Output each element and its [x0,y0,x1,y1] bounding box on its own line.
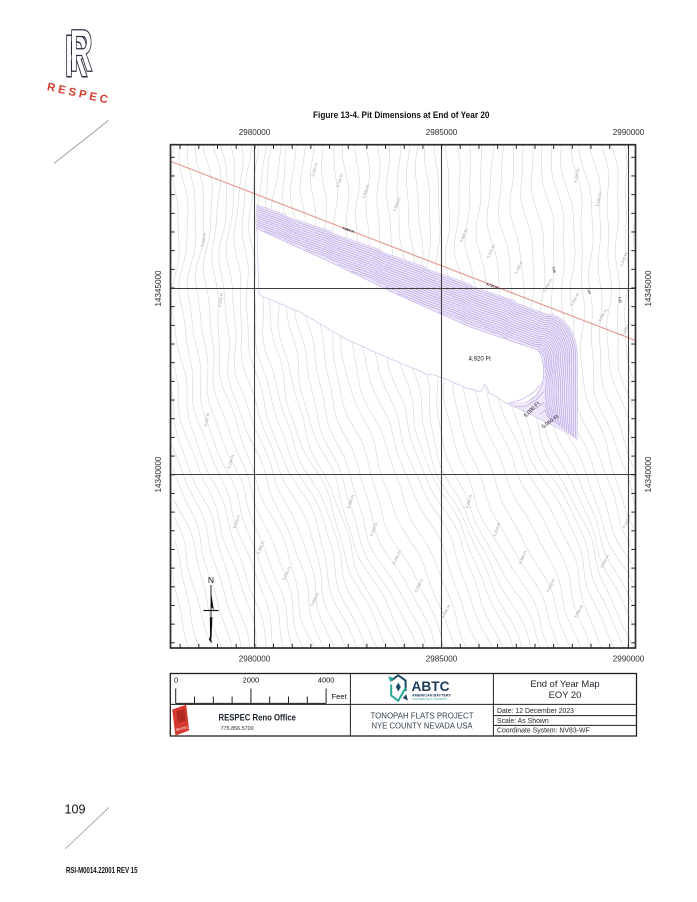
svg-text:Scale: As Shown: Scale: As Shown [497,718,549,725]
svg-text:4000: 4000 [318,676,334,685]
svg-text:14340000: 14340000 [154,456,163,493]
svg-text:2990000: 2990000 [613,655,645,664]
svg-text:2985000: 2985000 [426,655,458,664]
svg-text:2990000: 2990000 [613,128,645,137]
svg-text:RSI-M0014.22001 REV 15: RSI-M0014.22001 REV 15 [66,866,138,875]
svg-text:775.856.5700: 775.856.5700 [221,726,254,732]
svg-text:14340000: 14340000 [644,456,653,493]
svg-text:End of Year Map: End of Year Map [530,678,599,689]
svg-text:Figure 13-4. Pit Dimensions at: Figure 13-4. Pit Dimensions at End of Ye… [313,110,490,121]
svg-text:Date: 12 December 2023: Date: 12 December 2023 [497,708,574,715]
svg-text:2980000: 2980000 [239,655,271,664]
svg-text:NYE COUNTY NEVADA USA: NYE COUNTY NEVADA USA [372,721,473,731]
svg-text:4,920 Ft: 4,920 Ft [469,355,492,362]
svg-text:2985000: 2985000 [426,128,458,137]
svg-text:EOY 20: EOY 20 [549,689,582,700]
svg-text:14345000: 14345000 [644,270,653,307]
svg-text:N: N [208,575,214,585]
svg-text:14345000: 14345000 [154,270,163,307]
svg-text:RESPEC Reno Office: RESPEC Reno Office [219,713,297,723]
svg-text:2980000: 2980000 [239,128,271,137]
svg-text:0: 0 [174,676,178,685]
svg-text:Coordinate System: NV83-WF: Coordinate System: NV83-WF [497,728,590,735]
svg-text:TECHNOLOGY COMPANY: TECHNOLOGY COMPANY [412,697,447,701]
svg-text:2000: 2000 [243,676,259,685]
svg-text:R: R [70,18,93,85]
svg-text:109: 109 [65,802,86,816]
svg-text:TONOPAH FLATS PROJECT: TONOPAH FLATS PROJECT [371,711,474,721]
svg-text:Feet: Feet [332,692,348,701]
svg-text:ABTC: ABTC [412,679,450,694]
